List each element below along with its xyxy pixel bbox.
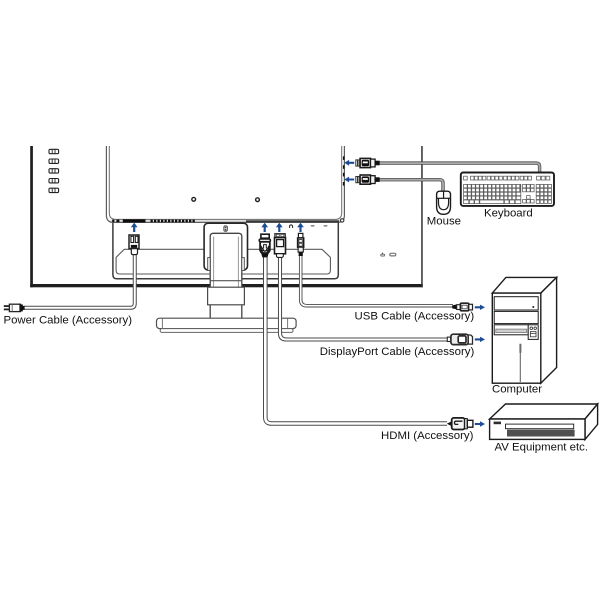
svg-text:HDMI (Accessory): HDMI (Accessory) xyxy=(381,430,474,442)
svg-text:DisplayPort Cable (Accessory): DisplayPort Cable (Accessory) xyxy=(320,346,475,358)
svg-text:Keyboard: Keyboard xyxy=(484,207,533,219)
svg-text:Computer: Computer xyxy=(492,383,542,395)
svg-text:AV Equipment etc.: AV Equipment etc. xyxy=(495,442,589,454)
svg-text:Mouse: Mouse xyxy=(427,216,461,228)
svg-text:Power Cable (Accessory): Power Cable (Accessory) xyxy=(4,315,133,327)
svg-text:USB Cable (Accessory): USB Cable (Accessory) xyxy=(355,311,475,323)
